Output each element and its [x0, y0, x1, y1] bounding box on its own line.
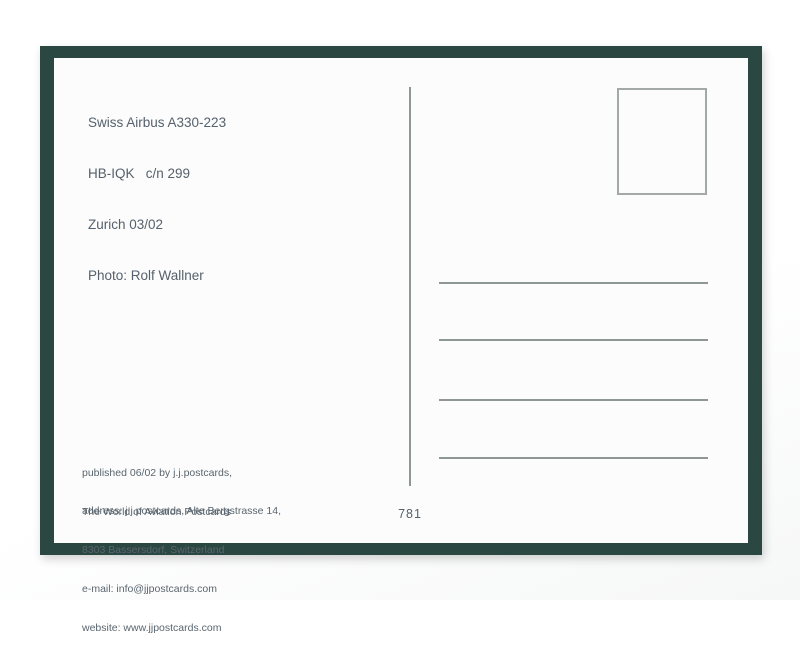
- publisher-address-line: address: j.j.postcards, Alte Bergstrasse…: [82, 505, 281, 518]
- publisher-address-line: e-mail: info@jjpostcards.com: [82, 583, 281, 596]
- caption-registration: HB-IQK c/n 299: [88, 165, 226, 182]
- message-address-divider: [409, 87, 411, 486]
- caption-photographer: Photo: Rolf Wallner: [88, 267, 226, 284]
- photo-caption: Swiss Airbus A330-223 HB-IQK c/n 299 Zur…: [88, 80, 226, 318]
- publisher-address: address: j.j.postcards, Alte Bergstrasse…: [82, 479, 281, 661]
- postcard-scan: Swiss Airbus A330-223 HB-IQK c/n 299 Zur…: [0, 0, 800, 600]
- publisher-address-line: 8303 Bassersdorf, Switzerland: [82, 544, 281, 557]
- card-number: 781: [384, 507, 436, 521]
- caption-location-date: Zurich 03/02: [88, 216, 226, 233]
- caption-aircraft-type: Swiss Airbus A330-223: [88, 114, 226, 131]
- address-ruled-line: [439, 399, 708, 401]
- address-ruled-line: [439, 457, 708, 459]
- publisher-address-line: website: www.jjpostcards.com: [82, 622, 281, 635]
- postcard-back: Swiss Airbus A330-223 HB-IQK c/n 299 Zur…: [54, 58, 748, 543]
- address-ruled-line: [439, 339, 708, 341]
- postcard-frame: Swiss Airbus A330-223 HB-IQK c/n 299 Zur…: [40, 46, 762, 555]
- stamp-box: [617, 88, 707, 195]
- address-ruled-line: [439, 282, 708, 284]
